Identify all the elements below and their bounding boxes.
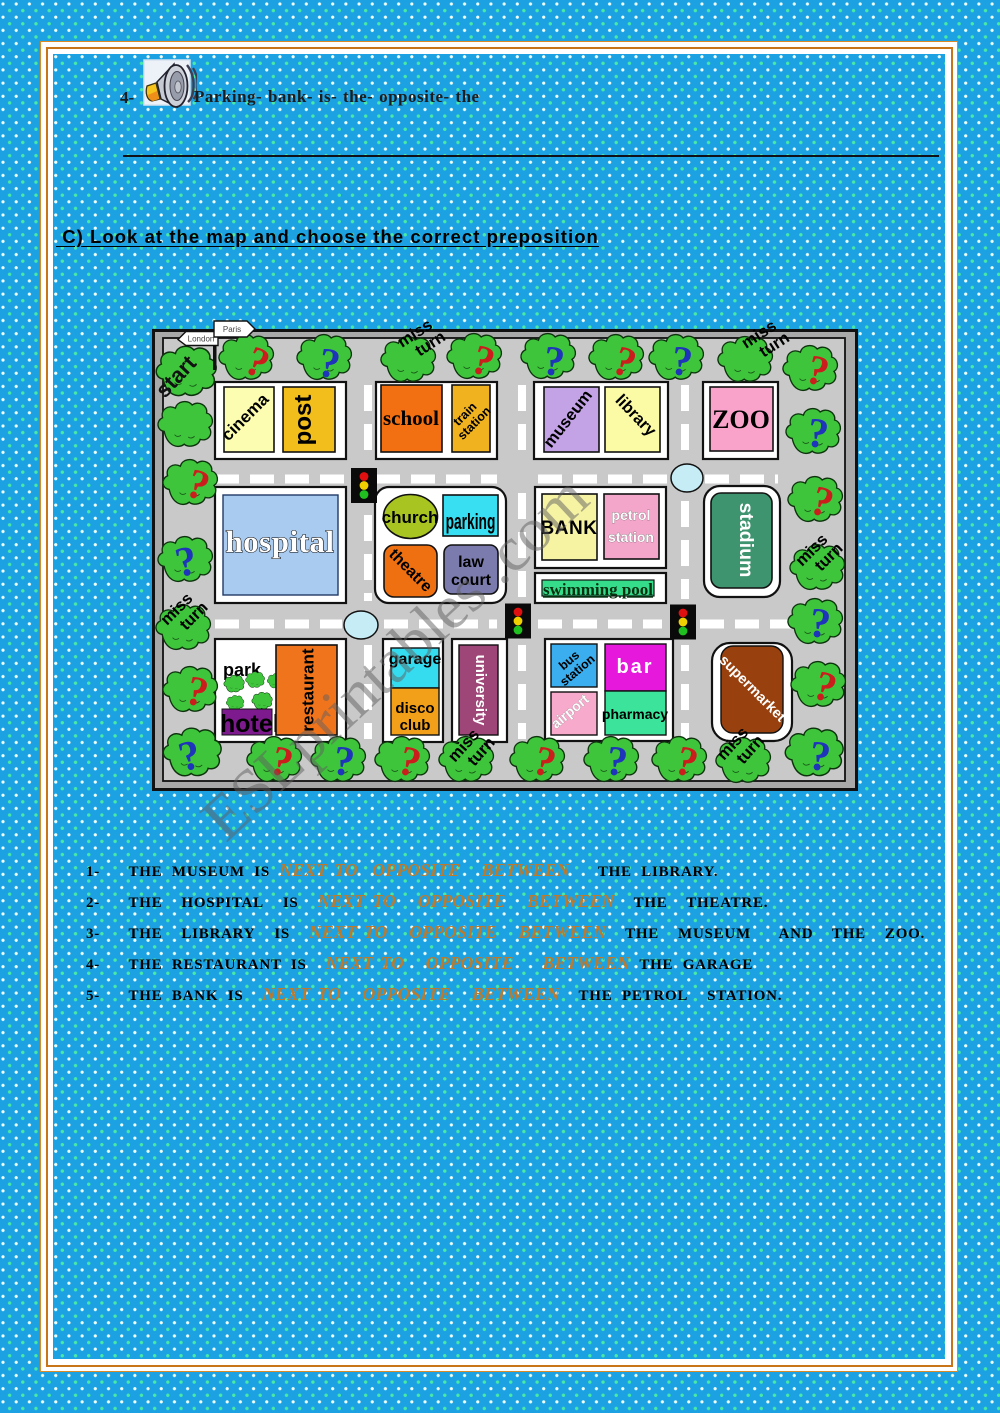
svg-text:church: church [382, 508, 439, 527]
svg-text:bar: bar [616, 656, 653, 678]
svg-text:hospital: hospital [225, 524, 334, 559]
svg-text:ZOO: ZOO [712, 405, 770, 434]
svg-text:London: London [188, 335, 215, 344]
svg-text:pharmacy: pharmacy [602, 706, 668, 722]
svg-text:post: post [290, 395, 317, 446]
svg-text:school: school [383, 406, 439, 430]
svg-text:Paris: Paris [223, 325, 241, 334]
svg-text:petrol: petrol [612, 507, 651, 523]
svg-text:disco: disco [395, 700, 434, 717]
svg-text:stadium: stadium [735, 503, 757, 578]
svg-text:station: station [608, 529, 654, 545]
svg-text:swimming pool: swimming pool [543, 580, 653, 599]
svg-text:university: university [472, 655, 489, 727]
svg-text:club: club [400, 717, 431, 734]
